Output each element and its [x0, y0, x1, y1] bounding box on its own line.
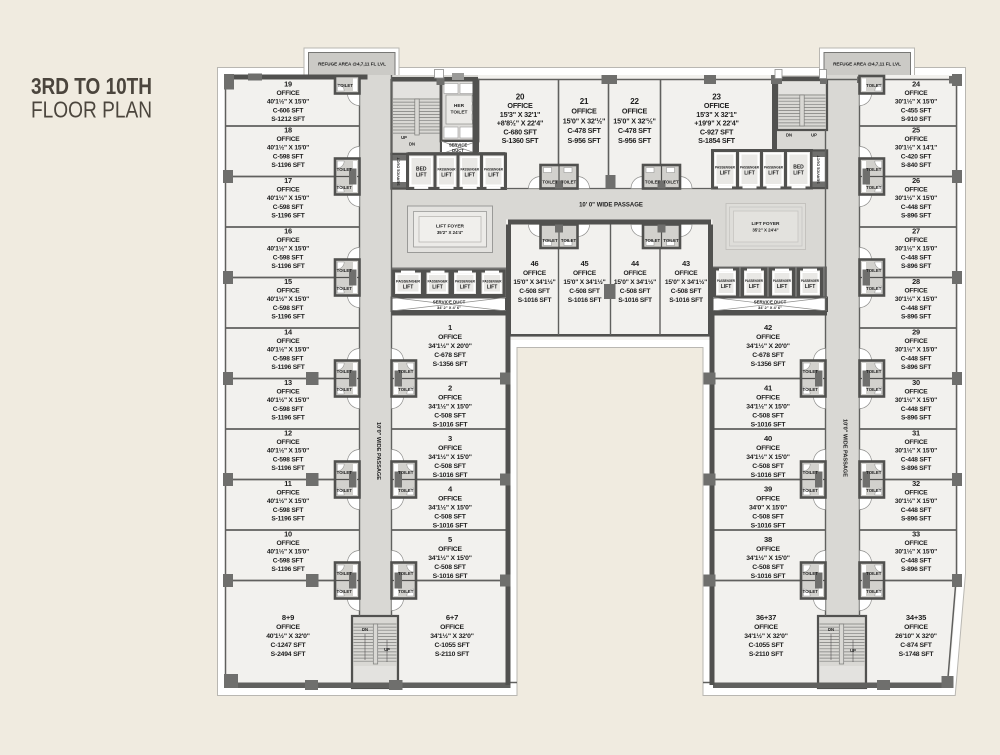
svg-text:C-448 SFT: C-448 SFT	[901, 204, 932, 211]
svg-text:LIFT: LIFT	[793, 170, 804, 176]
svg-text:30'1½" X 15'0": 30'1½" X 15'0"	[895, 447, 937, 455]
svg-text:40'1½" X 15'0": 40'1½" X 15'0"	[267, 497, 309, 505]
svg-text:TOILET: TOILET	[803, 470, 819, 475]
svg-text:LIFT: LIFT	[416, 172, 427, 178]
svg-text:C-678 SFT: C-678 SFT	[434, 352, 466, 359]
svg-text:TOILET: TOILET	[866, 268, 882, 273]
svg-text:S-1016 SFT: S-1016 SFT	[433, 523, 469, 530]
svg-text:PASSENGER: PASSENGER	[801, 279, 819, 283]
svg-text:2: 2	[448, 384, 452, 393]
svg-text:C-448 SFT: C-448 SFT	[901, 557, 932, 564]
svg-text:C-598 SFT: C-598 SFT	[273, 305, 304, 312]
svg-text:LIFT: LIFT	[749, 284, 760, 290]
svg-text:TOILET: TOILET	[866, 589, 882, 594]
svg-text:S-1016 SFT: S-1016 SFT	[751, 523, 787, 530]
svg-text:LIFT FOYER: LIFT FOYER	[752, 221, 781, 227]
svg-text:S-1016 SFT: S-1016 SFT	[518, 297, 552, 304]
svg-text:OFFICE: OFFICE	[904, 624, 928, 631]
svg-text:40: 40	[764, 434, 772, 443]
svg-text:S-840 SFT: S-840 SFT	[901, 162, 931, 169]
svg-text:C-598 SFT: C-598 SFT	[273, 254, 304, 261]
svg-text:34'1½" X 15'0": 34'1½" X 15'0"	[428, 403, 472, 411]
svg-text:14: 14	[284, 328, 293, 337]
svg-text:34'1½" X 20'0": 34'1½" X 20'0"	[428, 342, 472, 350]
svg-text:S-1196 SFT: S-1196 SFT	[271, 212, 304, 219]
svg-text:DN: DN	[362, 627, 368, 632]
svg-text:OFFICE: OFFICE	[277, 90, 301, 97]
svg-text:S-1212 SFT: S-1212 SFT	[271, 116, 305, 123]
svg-text:PASSENGER: PASSENGER	[773, 279, 791, 283]
svg-text:OFFICE: OFFICE	[756, 445, 780, 452]
svg-text:40'1½" X 15'0": 40'1½" X 15'0"	[267, 346, 309, 354]
svg-text:C-680 SFT: C-680 SFT	[503, 127, 537, 136]
svg-text:45: 45	[581, 259, 589, 268]
svg-text:31: 31	[912, 429, 920, 438]
svg-text:C-606 SFT: C-606 SFT	[273, 107, 304, 114]
svg-text:OFFICE: OFFICE	[905, 136, 929, 143]
svg-text:34'1½" X 15'0": 34'1½" X 15'0"	[746, 453, 790, 461]
svg-text:C-448 SFT: C-448 SFT	[901, 456, 932, 463]
svg-text:DN: DN	[828, 627, 834, 632]
svg-text:S-1016 SFT: S-1016 SFT	[433, 422, 469, 429]
svg-text:TOILET: TOILET	[337, 167, 353, 172]
svg-text:23: 23	[712, 93, 721, 102]
svg-text:OFFICE: OFFICE	[277, 288, 301, 295]
svg-text:15'0" X 32'½": 15'0" X 32'½"	[563, 116, 605, 125]
svg-text:38: 38	[764, 535, 772, 544]
svg-text:43: 43	[682, 259, 690, 268]
svg-text:DN: DN	[409, 142, 415, 147]
svg-text:OFFICE: OFFICE	[277, 439, 301, 446]
svg-text:32: 32	[912, 479, 920, 488]
svg-text:C-508 SFT: C-508 SFT	[519, 288, 550, 295]
svg-text:20: 20	[516, 93, 525, 102]
svg-text:26'10" X 32'0": 26'10" X 32'0"	[895, 633, 937, 640]
svg-text:TOILET: TOILET	[866, 387, 882, 392]
svg-text:LIFT: LIFT	[488, 172, 499, 178]
svg-text:S-1016 SFT: S-1016 SFT	[669, 297, 703, 304]
svg-text:HER: HER	[454, 103, 465, 109]
svg-text:C-874 SFT: C-874 SFT	[900, 642, 932, 649]
svg-text:TOILET: TOILET	[866, 488, 882, 493]
svg-text:30'1½" X 15'0": 30'1½" X 15'0"	[895, 346, 937, 354]
svg-text:10: 10	[284, 530, 292, 539]
svg-text:OFFICE: OFFICE	[905, 338, 929, 345]
svg-text:S-896 SFT: S-896 SFT	[901, 566, 931, 573]
svg-text:S-910 SFT: S-910 SFT	[901, 116, 931, 123]
svg-text:TOILET: TOILET	[866, 167, 882, 172]
svg-text:S-1196 SFT: S-1196 SFT	[271, 566, 304, 573]
svg-text:OFFICE: OFFICE	[756, 334, 780, 341]
svg-text:S-1196 SFT: S-1196 SFT	[271, 465, 304, 472]
svg-text:OFFICE: OFFICE	[277, 338, 301, 345]
svg-text:S-896 SFT: S-896 SFT	[901, 212, 931, 219]
svg-text:28: 28	[912, 277, 920, 286]
svg-text:TOILET: TOILET	[451, 110, 468, 116]
svg-text:SERVICE DUCT: SERVICE DUCT	[754, 300, 787, 305]
svg-text:TOILET: TOILET	[866, 185, 882, 190]
svg-text:S-1356 SFT: S-1356 SFT	[433, 361, 469, 368]
svg-text:C-455 SFT: C-455 SFT	[901, 107, 932, 114]
svg-text:S-896 SFT: S-896 SFT	[901, 313, 931, 320]
svg-text:C-508 SFT: C-508 SFT	[752, 413, 784, 420]
svg-text:21: 21	[580, 97, 589, 106]
svg-text:C-598 SFT: C-598 SFT	[273, 507, 304, 514]
svg-text:PASSENGER: PASSENGER	[438, 167, 456, 171]
svg-text:17: 17	[284, 176, 292, 185]
svg-text:10'0" WIDE PASSAGE: 10'0" WIDE PASSAGE	[842, 419, 848, 477]
svg-text:OFFICE: OFFICE	[905, 288, 929, 295]
svg-text:34'1½" X 15'0": 34'1½" X 15'0"	[428, 453, 472, 461]
svg-text:TOILET: TOILET	[337, 185, 353, 190]
svg-text:LIFT: LIFT	[721, 284, 732, 290]
svg-text:LIFT: LIFT	[441, 172, 452, 178]
svg-text:46: 46	[531, 259, 539, 268]
svg-text:39: 39	[764, 485, 772, 494]
svg-text:34'0" X 15'0": 34'0" X 15'0"	[749, 505, 787, 512]
svg-text:40'1½" X 15'0": 40'1½" X 15'0"	[267, 194, 309, 202]
svg-text:PASSENGER: PASSENGER	[396, 279, 420, 283]
svg-text:LIFT: LIFT	[768, 170, 779, 176]
svg-text:S-1016 SFT: S-1016 SFT	[751, 573, 787, 580]
svg-text:OFFICE: OFFICE	[756, 496, 780, 503]
svg-text:C-508 SFT: C-508 SFT	[752, 514, 784, 521]
svg-text:30'1½" X 15'0": 30'1½" X 15'0"	[895, 194, 937, 202]
svg-text:C-508 SFT: C-508 SFT	[434, 564, 466, 571]
svg-text:LIFT FOYER: LIFT FOYER	[436, 224, 465, 230]
svg-text:S-2494 SFT: S-2494 SFT	[271, 651, 307, 658]
svg-text:30'1½" X 14'1": 30'1½" X 14'1"	[895, 144, 937, 152]
svg-text:S-1196 SFT: S-1196 SFT	[271, 313, 304, 320]
svg-text:12: 12	[284, 429, 292, 438]
svg-text:UP: UP	[811, 133, 817, 138]
svg-text:LIFT: LIFT	[403, 284, 414, 290]
svg-text:OFFICE: OFFICE	[438, 334, 462, 341]
svg-text:TOILET: TOILET	[803, 571, 819, 576]
svg-text:13: 13	[284, 378, 292, 387]
svg-text:LIFT: LIFT	[777, 284, 788, 290]
svg-text:TOILET: TOILET	[663, 238, 679, 243]
svg-text:C-1055 SFT: C-1055 SFT	[434, 642, 470, 649]
svg-text:FLOOR PLAN: FLOOR PLAN	[31, 97, 152, 123]
svg-text:S-956 SFT: S-956 SFT	[618, 136, 652, 145]
svg-text:S-1016 SFT: S-1016 SFT	[751, 472, 787, 479]
svg-text:30'1½" X 15'0": 30'1½" X 15'0"	[895, 245, 937, 253]
svg-text:34'1½" X 32'0": 34'1½" X 32'0"	[744, 632, 788, 640]
svg-text:10'0" WIDE PASSAGE: 10'0" WIDE PASSAGE	[375, 422, 381, 480]
svg-text:3RD TO 10TH: 3RD TO 10TH	[31, 73, 152, 99]
svg-text:TOILET: TOILET	[803, 369, 819, 374]
svg-text:C-1055 SFT: C-1055 SFT	[748, 642, 784, 649]
svg-text:30'1½" X 15'0": 30'1½" X 15'0"	[895, 497, 937, 505]
svg-text:6+7: 6+7	[446, 613, 458, 622]
svg-text:TOILET: TOILET	[337, 369, 353, 374]
svg-text:8+9: 8+9	[282, 613, 294, 622]
svg-text:40'1½" X 32'0": 40'1½" X 32'0"	[266, 632, 310, 640]
svg-text:OFFICE: OFFICE	[905, 439, 929, 446]
svg-text:TOILET: TOILET	[337, 286, 353, 291]
svg-text:PASSENGER: PASSENGER	[483, 279, 502, 283]
svg-text:OFFICE: OFFICE	[756, 395, 780, 402]
svg-text:C-478 SFT: C-478 SFT	[567, 126, 601, 135]
svg-text:11: 11	[284, 479, 292, 488]
svg-text:33: 33	[912, 530, 920, 539]
svg-text:34'1½" X 32'0": 34'1½" X 32'0"	[430, 632, 474, 640]
svg-text:34'1½" X 15'0": 34'1½" X 15'0"	[428, 554, 472, 562]
svg-text:TOILET: TOILET	[337, 387, 353, 392]
svg-text:TOILET: TOILET	[803, 387, 819, 392]
svg-text:OFFICE: OFFICE	[523, 270, 547, 277]
svg-text:OFFICE: OFFICE	[573, 270, 597, 277]
svg-text:LIFT: LIFT	[805, 284, 816, 290]
svg-text:C-598 SFT: C-598 SFT	[273, 557, 304, 564]
svg-text:+19'9" X 22'4": +19'9" X 22'4"	[694, 119, 738, 128]
svg-text:REFUGE AREA @4,7,11 FL LVL: REFUGE AREA @4,7,11 FL LVL	[318, 62, 386, 67]
svg-text:OFFICE: OFFICE	[905, 90, 929, 97]
svg-text:S-1196 SFT: S-1196 SFT	[271, 364, 304, 371]
svg-text:TOILET: TOILET	[337, 268, 353, 273]
svg-text:S-896 SFT: S-896 SFT	[901, 364, 931, 371]
svg-text:LIFT: LIFT	[744, 170, 755, 176]
svg-text:OFFICE: OFFICE	[277, 237, 301, 244]
svg-text:OFFICE: OFFICE	[905, 187, 929, 194]
svg-text:PASSENGER: PASSENGER	[428, 279, 448, 283]
svg-text:PASSENGER: PASSENGER	[740, 165, 759, 169]
svg-text:TOILET: TOILET	[561, 238, 577, 243]
svg-text:SERVICE DUCT: SERVICE DUCT	[817, 155, 821, 184]
svg-text:OFFICE: OFFICE	[438, 445, 462, 452]
svg-text:OFFICE: OFFICE	[277, 136, 301, 143]
svg-text:OFFICE: OFFICE	[905, 237, 929, 244]
svg-text:C-448 SFT: C-448 SFT	[901, 355, 932, 362]
svg-text:C-508 SFT: C-508 SFT	[569, 288, 600, 295]
svg-text:OFFICE: OFFICE	[438, 546, 462, 553]
svg-text:S-896 SFT: S-896 SFT	[901, 414, 931, 421]
svg-text:36+37: 36+37	[756, 613, 776, 622]
svg-text:TOILET: TOILET	[398, 369, 414, 374]
svg-text:3: 3	[448, 434, 452, 443]
svg-text:S-1196 SFT: S-1196 SFT	[271, 414, 304, 421]
svg-text:PASSENGER: PASSENGER	[461, 167, 480, 171]
svg-text:TOILET: TOILET	[866, 470, 882, 475]
svg-text:S-1016 SFT: S-1016 SFT	[751, 422, 787, 429]
svg-text:OFFICE: OFFICE	[704, 101, 730, 110]
svg-text:C-508 SFT: C-508 SFT	[752, 463, 784, 470]
svg-text:34'1½" X 15'0": 34'1½" X 15'0"	[746, 403, 790, 411]
svg-text:TOILET: TOILET	[866, 571, 882, 576]
svg-text:PASSENGER: PASSENGER	[717, 279, 735, 283]
svg-text:OFFICE: OFFICE	[507, 101, 533, 110]
svg-text:DN: DN	[786, 133, 792, 138]
svg-text:OFFICE: OFFICE	[754, 624, 778, 631]
svg-text:40'1½" X 15'0": 40'1½" X 15'0"	[267, 396, 309, 404]
svg-text:15'0" X 34'1½": 15'0" X 34'1½"	[563, 278, 605, 286]
svg-text:15'0" X 32'½": 15'0" X 32'½"	[613, 116, 655, 125]
svg-text:C-508 SFT: C-508 SFT	[434, 413, 466, 420]
svg-text:TOILET: TOILET	[542, 180, 558, 185]
svg-text:S-896 SFT: S-896 SFT	[901, 263, 931, 270]
svg-text:S-1360 SFT: S-1360 SFT	[502, 136, 540, 145]
svg-text:C-598 SFT: C-598 SFT	[273, 153, 304, 160]
svg-text:TOILET: TOILET	[337, 571, 353, 576]
svg-text:S-1016 SFT: S-1016 SFT	[618, 297, 652, 304]
svg-text:OFFICE: OFFICE	[277, 389, 301, 396]
svg-text:25: 25	[912, 126, 920, 135]
svg-text:LIFT: LIFT	[432, 284, 443, 290]
svg-text:16: 16	[284, 227, 292, 236]
svg-text:TOILET: TOILET	[337, 488, 353, 493]
svg-text:41: 41	[764, 384, 773, 393]
svg-text:34'1½" X 20'0": 34'1½" X 20'0"	[746, 342, 790, 350]
svg-text:34+35: 34+35	[906, 613, 927, 622]
svg-text:PASSENGER: PASSENGER	[715, 165, 735, 169]
svg-text:40'1½" X 15'0": 40'1½" X 15'0"	[267, 295, 309, 303]
svg-text:C-478 SFT: C-478 SFT	[618, 126, 652, 135]
svg-text:OFFICE: OFFICE	[277, 187, 301, 194]
svg-text:SERVICE DUCT: SERVICE DUCT	[397, 157, 401, 186]
svg-text:OFFICE: OFFICE	[277, 490, 301, 497]
svg-text:35'2" X 24'4": 35'2" X 24'4"	[437, 230, 463, 235]
svg-text:22: 22	[630, 97, 639, 106]
svg-text:OFFICE: OFFICE	[276, 624, 300, 631]
svg-text:30'1½" X 15'0": 30'1½" X 15'0"	[895, 98, 937, 106]
svg-text:TOILET: TOILET	[645, 180, 661, 185]
svg-text:SERVICE: SERVICE	[449, 143, 468, 148]
svg-text:TOILET: TOILET	[645, 238, 661, 243]
svg-text:OFFICE: OFFICE	[624, 270, 648, 277]
svg-text:34'1½" X 15'0": 34'1½" X 15'0"	[746, 554, 790, 562]
svg-text:TOILET: TOILET	[866, 286, 882, 291]
svg-text:42: 42	[764, 323, 772, 332]
svg-text:C-927 SFT: C-927 SFT	[700, 127, 734, 136]
svg-text:19: 19	[284, 80, 292, 89]
svg-text:34'1½" X 15'0": 34'1½" X 15'0"	[428, 504, 472, 512]
svg-text:18: 18	[284, 126, 292, 135]
svg-text:S-956 SFT: S-956 SFT	[568, 136, 602, 145]
svg-text:C-598 SFT: C-598 SFT	[273, 456, 304, 463]
svg-text:TOILET: TOILET	[803, 589, 819, 594]
svg-text:TOILET: TOILET	[398, 589, 414, 594]
svg-text:LIFT: LIFT	[460, 284, 471, 290]
svg-text:S-1196 SFT: S-1196 SFT	[271, 515, 304, 522]
svg-text:S-896 SFT: S-896 SFT	[901, 515, 931, 522]
svg-text:S-2110 SFT: S-2110 SFT	[749, 651, 784, 658]
svg-text:OFFICE: OFFICE	[756, 546, 780, 553]
svg-text:S-1016 SFT: S-1016 SFT	[568, 297, 602, 304]
svg-text:OFFICE: OFFICE	[438, 395, 462, 402]
svg-text:15'0" X 34'1½": 15'0" X 34'1½"	[513, 278, 555, 286]
svg-text:40'1½" X 15'0": 40'1½" X 15'0"	[267, 447, 309, 455]
svg-text:C-448 SFT: C-448 SFT	[901, 507, 932, 514]
svg-text:TOILET: TOILET	[663, 180, 679, 185]
svg-text:LIFT: LIFT	[487, 284, 498, 290]
svg-text:PASSENGER: PASSENGER	[484, 167, 503, 171]
svg-text:15'0" X 34'1½": 15'0" X 34'1½"	[665, 278, 707, 286]
svg-text:15'0" X 34'1½": 15'0" X 34'1½"	[614, 278, 656, 286]
svg-text:S-1854 SFT: S-1854 SFT	[698, 136, 736, 145]
svg-text:PASSENGER: PASSENGER	[455, 279, 475, 283]
svg-text:OFFICE: OFFICE	[438, 496, 462, 503]
svg-text:S-1356 SFT: S-1356 SFT	[751, 361, 787, 368]
svg-text:S-1748 SFT: S-1748 SFT	[899, 651, 935, 658]
svg-text:TOILET: TOILET	[398, 488, 414, 493]
svg-text:TOILET: TOILET	[337, 589, 353, 594]
svg-text:C-678 SFT: C-678 SFT	[752, 352, 784, 359]
svg-text:OFFICE: OFFICE	[675, 270, 699, 277]
svg-text:C-1247 SFT: C-1247 SFT	[270, 642, 306, 649]
svg-text:TOILET: TOILET	[561, 180, 577, 185]
svg-text:C-598 SFT: C-598 SFT	[273, 204, 304, 211]
svg-text:30: 30	[912, 378, 920, 387]
svg-text:TOILET: TOILET	[338, 83, 354, 88]
svg-text:TOILET: TOILET	[398, 571, 414, 576]
svg-text:OFFICE: OFFICE	[905, 540, 929, 547]
svg-text:40'1½" X 15'0": 40'1½" X 15'0"	[267, 245, 309, 253]
svg-text:S-1196 SFT: S-1196 SFT	[271, 162, 304, 169]
svg-text:C-508 SFT: C-508 SFT	[620, 288, 651, 295]
svg-text:PASSENGER: PASSENGER	[745, 279, 763, 283]
svg-text:SERVICE DUCT: SERVICE DUCT	[433, 300, 466, 305]
svg-text:OFFICE: OFFICE	[440, 624, 464, 631]
svg-text:30'1½" X 15'0": 30'1½" X 15'0"	[895, 396, 937, 404]
svg-text:15'3" X 32'1": 15'3" X 32'1"	[500, 110, 540, 119]
svg-text:TOILET: TOILET	[866, 369, 882, 374]
svg-text:C-508 SFT: C-508 SFT	[434, 514, 466, 521]
svg-text:C-508 SFT: C-508 SFT	[752, 564, 784, 571]
svg-text:26: 26	[912, 176, 920, 185]
svg-text:OFFICE: OFFICE	[277, 540, 301, 547]
svg-text:LIFT: LIFT	[464, 172, 475, 178]
svg-text:34' 2" X 4' 6": 34' 2" X 4' 6"	[758, 305, 782, 310]
svg-text:TOILET: TOILET	[398, 387, 414, 392]
svg-text:S-1196 SFT: S-1196 SFT	[271, 263, 304, 270]
svg-text:44: 44	[631, 259, 640, 268]
svg-text:C-508 SFT: C-508 SFT	[671, 288, 702, 295]
svg-text:OFFICE: OFFICE	[571, 107, 597, 116]
svg-text:C-448 SFT: C-448 SFT	[901, 305, 932, 312]
svg-text:S-896 SFT: S-896 SFT	[901, 465, 931, 472]
svg-text:OFFICE: OFFICE	[622, 107, 648, 116]
svg-text:C-420 SFT: C-420 SFT	[901, 153, 932, 160]
svg-text:UP: UP	[401, 135, 407, 140]
svg-text:S-1016 SFT: S-1016 SFT	[433, 573, 469, 580]
svg-text:LIFT: LIFT	[720, 170, 731, 176]
svg-text:30'1½" X 15'0": 30'1½" X 15'0"	[895, 548, 937, 556]
svg-text:TOILET: TOILET	[866, 83, 882, 88]
svg-text:15'3" X 32'1": 15'3" X 32'1"	[696, 110, 736, 119]
svg-text:C-448 SFT: C-448 SFT	[901, 254, 932, 261]
svg-text:S-1016 SFT: S-1016 SFT	[433, 472, 469, 479]
svg-text:TOILET: TOILET	[337, 470, 353, 475]
svg-text:TOILET: TOILET	[542, 238, 558, 243]
svg-text:C-598 SFT: C-598 SFT	[273, 355, 304, 362]
svg-text:35'2" X 24'4": 35'2" X 24'4"	[752, 228, 778, 233]
svg-text:24: 24	[912, 80, 921, 89]
svg-text:34' 2" X 4' 6": 34' 2" X 4' 6"	[437, 305, 461, 310]
svg-text:OFFICE: OFFICE	[905, 389, 929, 396]
svg-text:S-2110 SFT: S-2110 SFT	[435, 651, 470, 658]
svg-text:OFFICE: OFFICE	[905, 490, 929, 497]
svg-text:40'1½" X 15'0": 40'1½" X 15'0"	[267, 548, 309, 556]
svg-text:C-508 SFT: C-508 SFT	[434, 463, 466, 470]
svg-text:10' 0" WIDE PASSAGE: 10' 0" WIDE PASSAGE	[579, 203, 643, 209]
svg-text:29: 29	[912, 328, 920, 337]
svg-text:40'1½" X 15'0": 40'1½" X 15'0"	[267, 144, 309, 152]
svg-text:15: 15	[284, 277, 292, 286]
svg-text:PASSENGER: PASSENGER	[764, 165, 783, 169]
svg-text:TOILET: TOILET	[803, 488, 819, 493]
svg-text:C-598 SFT: C-598 SFT	[273, 406, 304, 413]
